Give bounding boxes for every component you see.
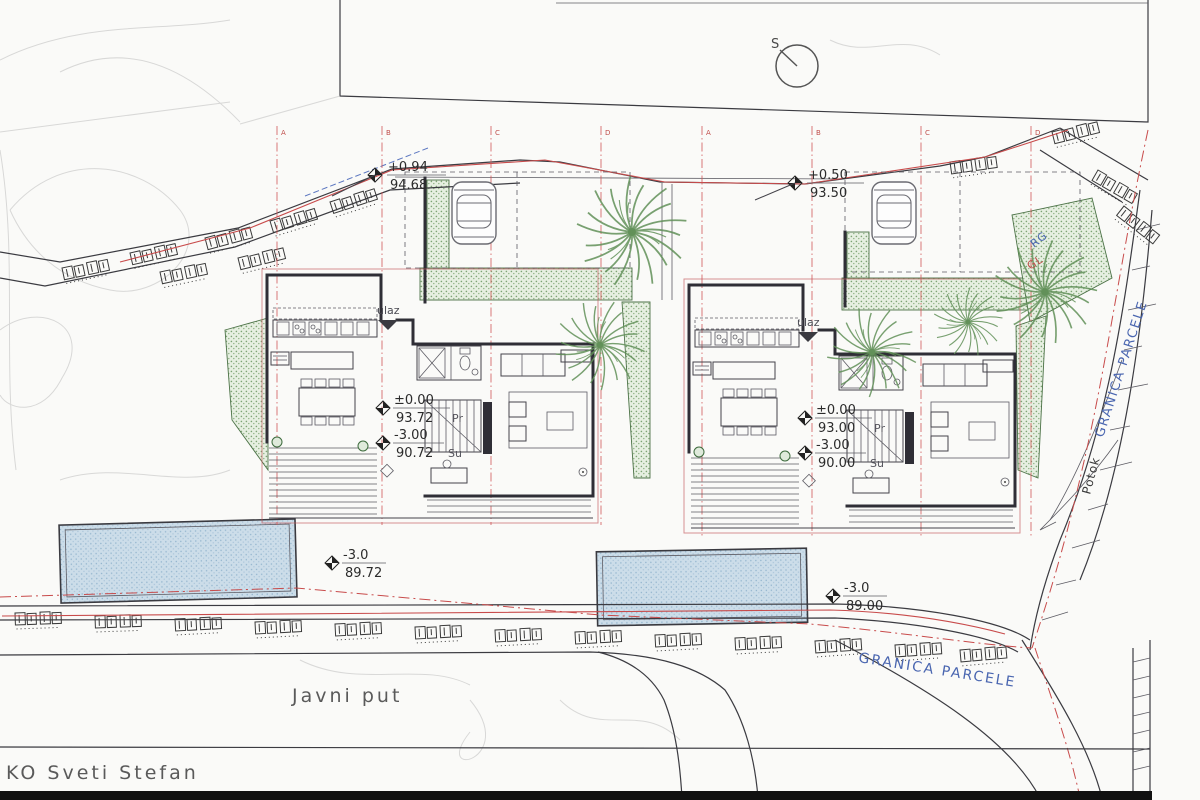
- planted-areas: [225, 180, 1112, 478]
- entrance-label-right: ulaz: [797, 316, 820, 329]
- level-relative: -3.00: [394, 428, 428, 443]
- cadastre-label: KO Sveti Stefan: [6, 762, 199, 784]
- grid-label-b-left: B: [386, 129, 391, 137]
- level-absolute: 94.68: [390, 178, 427, 193]
- level-marker-villa-right-lower: -3.00 90.00 Su: [798, 438, 884, 471]
- level-relative: +0.94: [388, 160, 428, 175]
- level-relative: -3.0: [343, 548, 368, 563]
- level-relative: -3.0: [844, 581, 869, 596]
- level-absolute: 89.00: [846, 599, 883, 614]
- grid-label-d-left: D: [605, 129, 610, 137]
- site-plan-sheet: S: [0, 0, 1200, 800]
- grid-label-c-left: C: [495, 129, 500, 137]
- level-absolute: 93.50: [810, 186, 847, 201]
- footer-divider: [0, 747, 1150, 749]
- north-arrow: S: [771, 37, 818, 87]
- car-left: [452, 182, 496, 244]
- parcel-boundary-label-right: GRANICA PARCELE: [1093, 299, 1151, 439]
- floor-label-basement: Su: [448, 447, 462, 460]
- level-marker-villa-left-lower: -3.00 90.72 Su: [376, 428, 462, 461]
- level-relative: ±0.00: [816, 403, 856, 418]
- pool-right: [596, 548, 807, 626]
- level-marker-street-right: +0.50 93.50: [755, 168, 864, 201]
- car-right: [872, 182, 916, 244]
- level-marker-pool-right: -3.0 89.00: [826, 581, 887, 614]
- level-absolute: 90.72: [396, 446, 433, 461]
- level-absolute: 93.00: [818, 421, 855, 436]
- stream-label: Potok: [1079, 455, 1102, 495]
- floor-label-basement: Su: [870, 457, 884, 470]
- level-relative: -3.00: [816, 438, 850, 453]
- site-plan-svg: S: [0, 0, 1200, 800]
- grid-label-d-right: D: [1035, 129, 1040, 137]
- level-marker-villa-left-ground: ±0.00 93.72 Pr: [376, 393, 463, 426]
- grid-label-b-right: B: [816, 129, 821, 137]
- grid-label-a-left: A: [281, 129, 286, 137]
- floor-label-ground: Pr: [452, 412, 463, 425]
- grid-label-c-right: C: [925, 129, 930, 137]
- entrance-right: ulaz: [797, 316, 820, 342]
- palm-tree: [817, 297, 926, 406]
- level-marker-villa-right-ground: ±0.00 93.00 Pr: [798, 403, 885, 436]
- grid-label-a-right: A: [706, 129, 711, 137]
- pool-left: [59, 519, 297, 603]
- parcel-boundary-lines: [0, 130, 1148, 798]
- title-box-outline: [240, 0, 1148, 124]
- level-absolute: 93.72: [396, 411, 433, 426]
- floor-label-ground: Pr: [874, 422, 885, 435]
- entrance-label-left: ulaz: [377, 304, 400, 317]
- level-absolute: 89.72: [345, 566, 382, 581]
- level-relative: +0.50: [808, 168, 848, 183]
- public-road-label: Javni put: [291, 685, 402, 707]
- parcel-boundary-label-bottom: GRANICA PARCELE: [857, 650, 1017, 691]
- level-relative: ±0.00: [394, 393, 434, 408]
- pencil-sketch-lines: [0, 20, 940, 760]
- level-absolute: 90.00: [818, 456, 855, 471]
- scan-bottom-edge: [0, 791, 1152, 800]
- level-marker-pool-left: -3.0 89.72: [325, 548, 386, 581]
- north-label: S: [771, 37, 779, 52]
